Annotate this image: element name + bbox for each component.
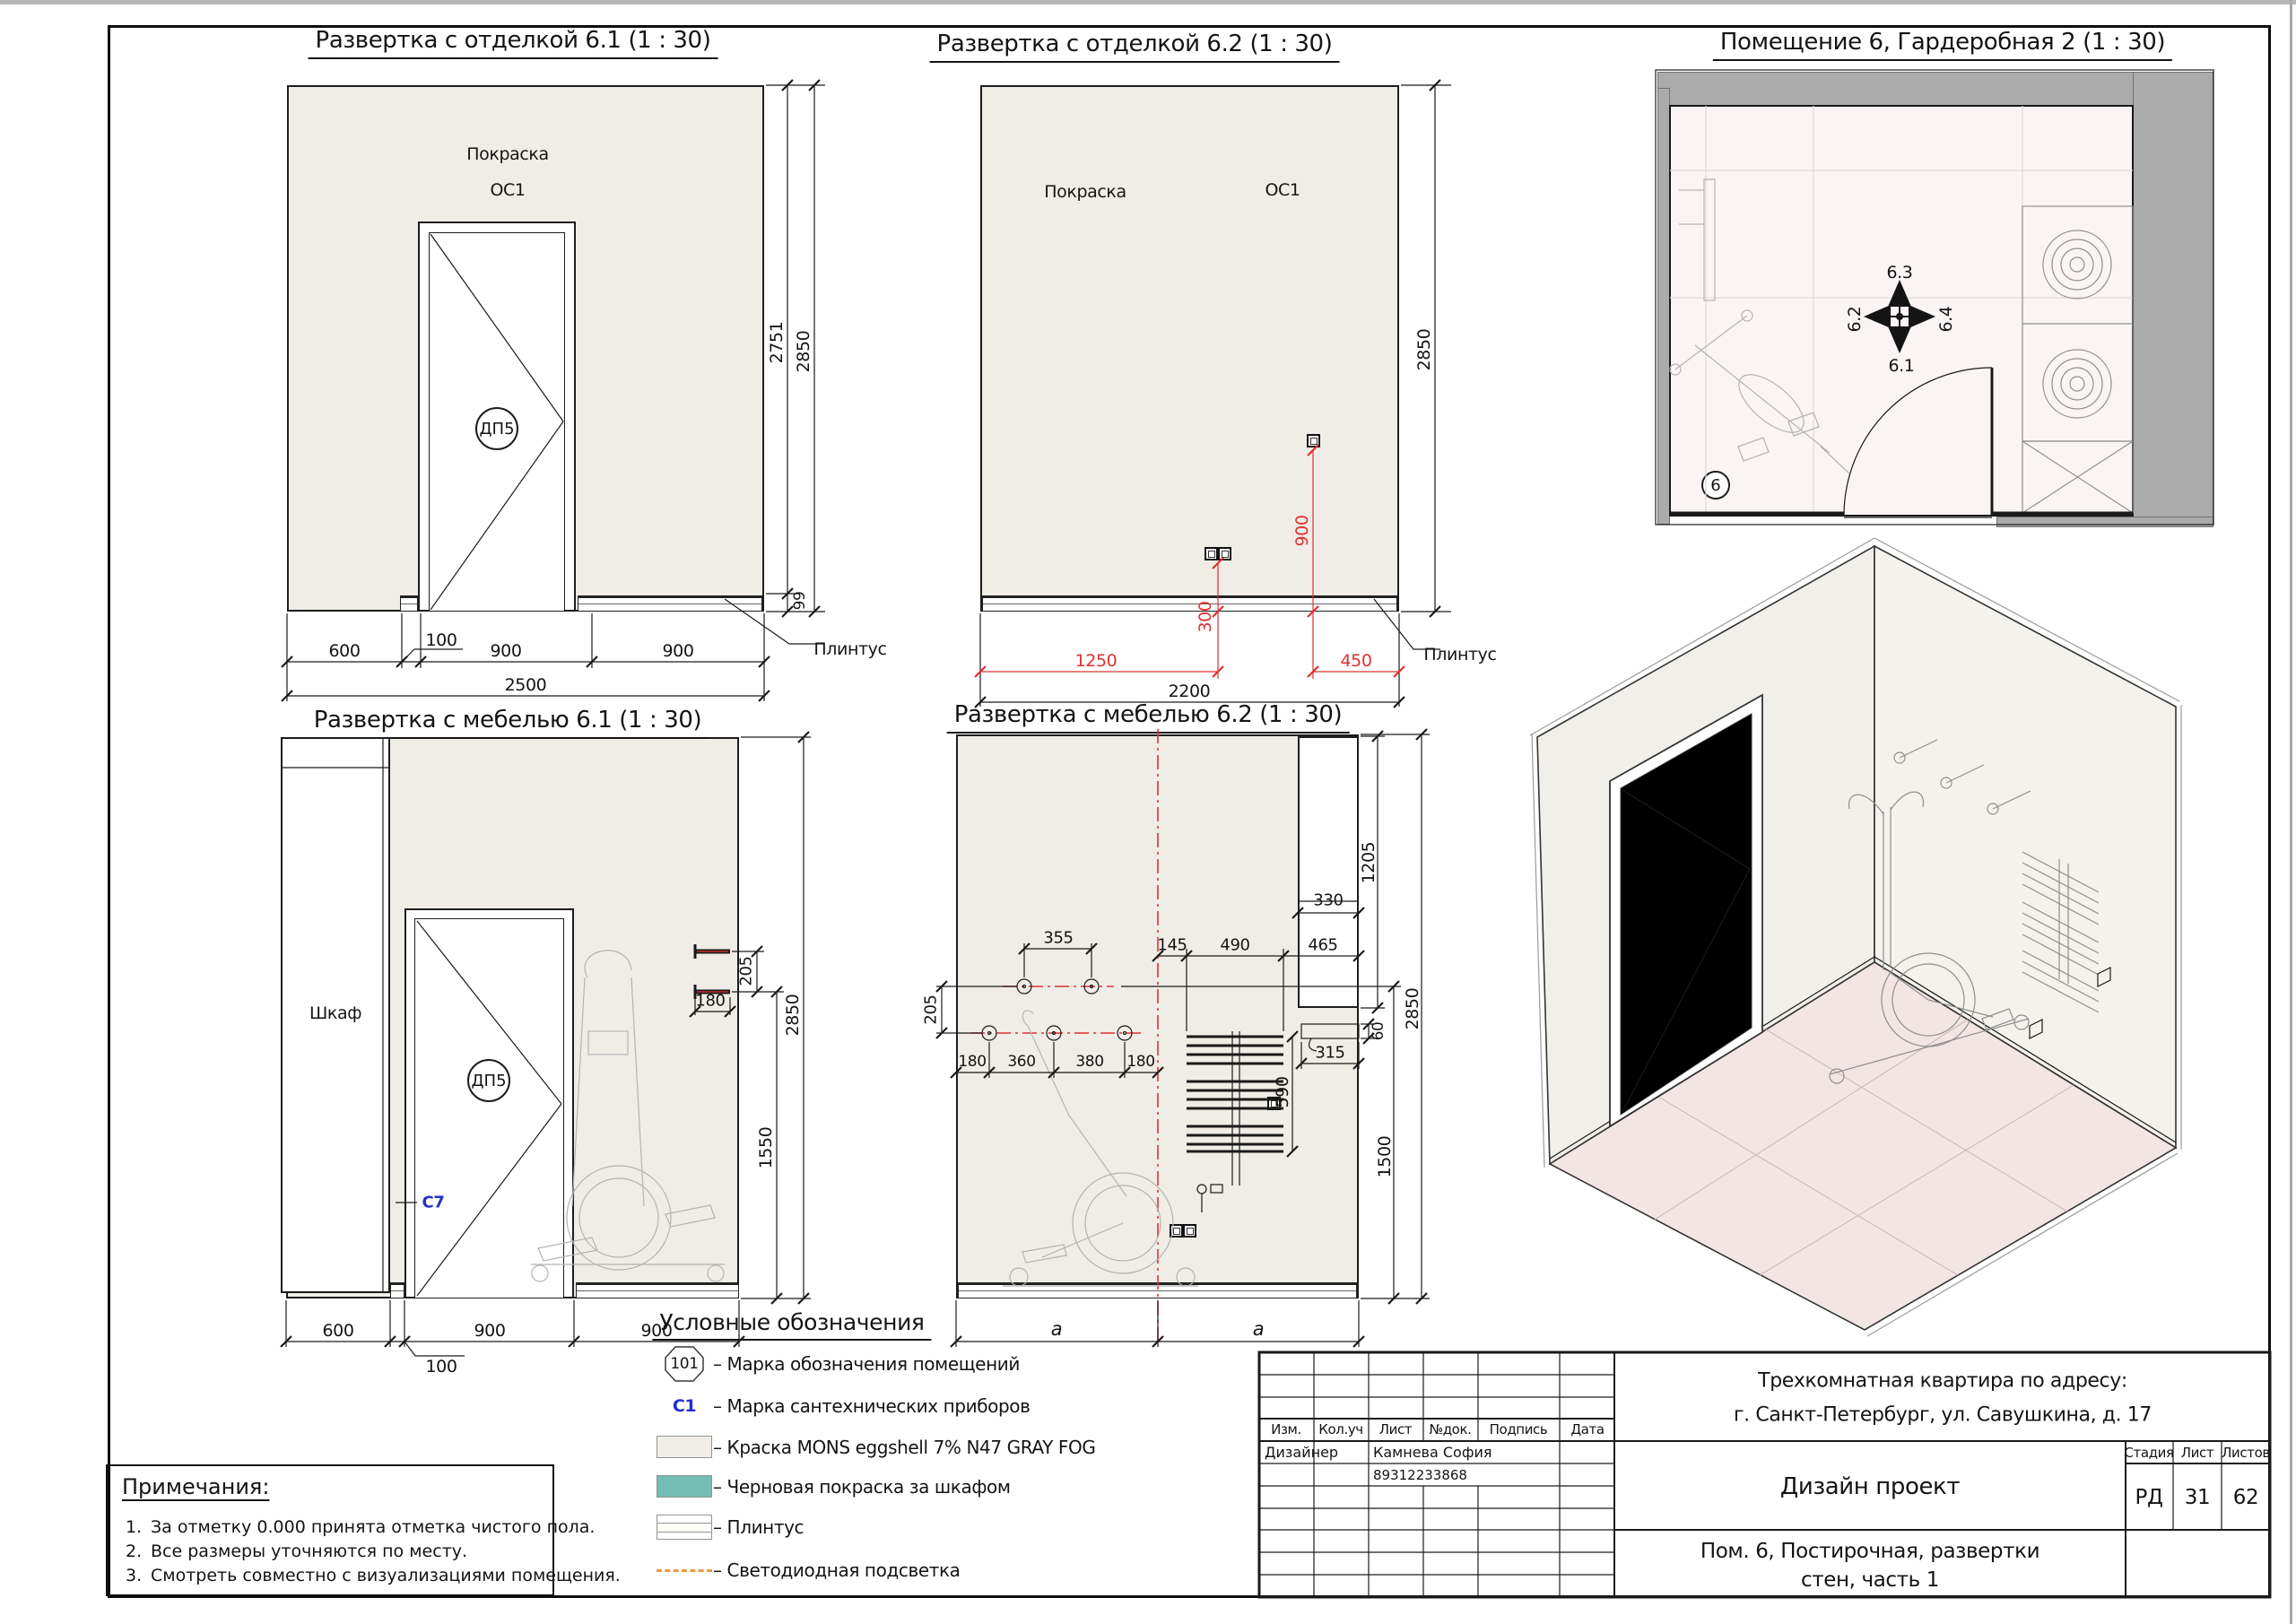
- socket-double-a-furn-6-2: [1170, 1224, 1183, 1238]
- dim-900b-furn-6-1: 900: [640, 1321, 672, 1341]
- tb-sheets-label: Листов: [2222, 1445, 2270, 1461]
- paint-code-6-2: ОС1: [1265, 180, 1300, 200]
- legend-san-mark: С1: [673, 1396, 696, 1416]
- plinth-label-6-1: Плинтус: [813, 639, 886, 659]
- tb-col-izm: Изм.: [1271, 1421, 1301, 1437]
- note-1-text: За отметку 0.000 принята отметка чистого…: [151, 1517, 595, 1537]
- dim-465-furn-6-2: 465: [1308, 936, 1337, 955]
- legend-swatch-plinth: [657, 1515, 712, 1540]
- legend-led-dash: [657, 1569, 712, 1572]
- plan-wall-left: [1657, 88, 1670, 525]
- tb-sheet-label: Лист: [2181, 1445, 2213, 1461]
- dim-100-furn-6-1: 100: [425, 1357, 457, 1376]
- tb-subject-1: Пом. 6, Постирочная, развертки: [1700, 1540, 2039, 1563]
- tb-col-dok: №док.: [1430, 1421, 1472, 1437]
- tb-col-data: Дата: [1570, 1421, 1604, 1437]
- notes-heading: Примечания:: [122, 1474, 269, 1499]
- view-title-finish-6-2: Развертка с отделкой 6.2 (1 : 30): [930, 30, 1340, 63]
- note-3-num: 3.: [126, 1566, 142, 1585]
- tb-sheets-value: 62: [2233, 1486, 2258, 1509]
- view-title-finish-6-1: Развертка с отделкой 6.1 (1 : 30): [309, 27, 718, 59]
- door-mark-tag-furn-6-1: ДП5: [467, 1059, 510, 1102]
- tb-address-2: г. Санкт-Петербург, ул. Савушкина, д. 17: [1734, 1404, 2152, 1427]
- legend-item-led: – Светодиодная подсветка: [713, 1559, 961, 1581]
- legend-heading: Условные обозначения: [652, 1309, 931, 1341]
- dim-1550-furn-6-1: 1550: [756, 1127, 776, 1169]
- marker-c7: С7: [422, 1194, 445, 1212]
- legend-item-san: – Марка сантехнических приборов: [713, 1395, 1031, 1417]
- socket-double-a-6-2: [1205, 547, 1218, 560]
- legend-swatch-rough-paint: [657, 1475, 712, 1498]
- page-right-edge: [2290, 0, 2292, 1624]
- door-mark-label: ДП5: [471, 1072, 506, 1090]
- plan-wall-bottom-right: [1996, 517, 2213, 527]
- plinth-left-furn-6-1: [390, 1282, 404, 1298]
- door-mark-label: ДП5: [479, 420, 514, 439]
- dim-380-furn-6-2: 380: [1075, 1053, 1103, 1071]
- dim-600-furn-6-1: 600: [322, 1321, 353, 1341]
- cabinet-furn-6-2: [1298, 736, 1359, 1008]
- dim-2850-furn-6-1: 2850: [783, 994, 803, 1037]
- legend-item-room: – Марка обозначения помещений: [713, 1353, 1020, 1375]
- dim-60-furn-6-2: 60: [1370, 1022, 1387, 1041]
- dim-2500-6-1: 2500: [505, 675, 547, 695]
- dim-1500-furn-6-2: 1500: [1375, 1136, 1395, 1178]
- paint-label-6-2: Покраска: [1044, 182, 1126, 202]
- tb-sheet-value: 31: [2185, 1486, 2210, 1509]
- view-title-furn-6-2: Развертка с мебелью 6.2 (1 : 30): [947, 701, 1350, 734]
- dim-330-furn-6-2: 330: [1313, 891, 1343, 910]
- dim-490-furn-6-2: 490: [1220, 936, 1249, 955]
- dim-2850-6-2: 2850: [1414, 329, 1434, 371]
- dim-2850-6-1: 2850: [794, 331, 813, 373]
- note-3-text: Смотреть совместно с визуализациями поме…: [151, 1566, 621, 1585]
- paint-label-6-1: Покраска: [466, 144, 548, 164]
- tb-address-1: Трехкомнатная квартира по адресу:: [1758, 1370, 2127, 1393]
- dim-180a-furn-6-2: 180: [958, 1053, 986, 1071]
- legend-swatch-paint: [657, 1436, 712, 1458]
- tb-designer-role: Дизайнер: [1265, 1444, 1338, 1461]
- plan-wall-right: [2133, 72, 2213, 525]
- plan-wall-top: [1657, 72, 2213, 106]
- tb-col-podpis: Подпись: [1490, 1421, 1548, 1437]
- wardrobe-label: Шкаф: [309, 1003, 361, 1023]
- dim-355-furn-6-2: 355: [1043, 929, 1073, 948]
- plinth-left-6-1: [400, 595, 418, 612]
- dim-590-furn-6-2: 590: [1273, 1076, 1292, 1107]
- dim-1205-furn-6-2: 1205: [1359, 842, 1378, 884]
- dim-900a-furn-6-1: 900: [474, 1321, 505, 1341]
- plinth-right-6-1: [578, 595, 762, 612]
- note-1-num: 1.: [126, 1517, 142, 1537]
- tb-project: Дизайн проект: [1780, 1473, 1960, 1500]
- plinth-furn-6-2: [958, 1282, 1357, 1298]
- plan-dir-left: 6.2: [1845, 306, 1865, 332]
- legend-item-plinth: – Плинтус: [713, 1516, 804, 1538]
- dim-2751-6-1: 2751: [767, 322, 787, 364]
- page-top-edge: [0, 0, 2296, 4]
- view-title-plan-6: Помещение 6, Гардеробная 2 (1 : 30): [1713, 29, 2172, 61]
- legend-room-mark: 101: [670, 1355, 698, 1373]
- dim-900a-6-1: 900: [490, 641, 521, 661]
- paint-code-6-1: ОС1: [490, 180, 525, 200]
- dim-1250-6-2: 1250: [1075, 651, 1118, 671]
- dim-900b-6-1: 900: [662, 641, 693, 661]
- dim-450-6-2: 450: [1340, 651, 1371, 671]
- dim-180-furn-6-1: 180: [695, 992, 725, 1011]
- dim-315-furn-6-2: 315: [1315, 1044, 1344, 1063]
- dim-600-6-1: 600: [328, 641, 360, 661]
- wall-finish-6-2: [980, 85, 1399, 612]
- plinth-label-6-2: Плинтус: [1423, 645, 1496, 664]
- socket-single-6-2: [1307, 434, 1320, 447]
- door-leaf-furn-6-1: [414, 918, 564, 1298]
- plan-room-tag: 6: [1701, 471, 1730, 499]
- dim-360-furn-6-2: 360: [1007, 1053, 1035, 1071]
- drawing-sheet: Развертка с отделкой 6.1 (1 : 30) ДП5 По…: [0, 0, 2296, 1624]
- dim-205-furn-6-1: 205: [737, 956, 756, 986]
- legend-item-paint: – Краска MONS eggshell 7% N47 GRAY FOG: [713, 1437, 1095, 1458]
- tb-designer-name: Камнева София: [1373, 1444, 1492, 1461]
- view-title-furn-6-1: Развертка с мебелью 6.1 (1 : 30): [307, 707, 709, 739]
- plan-dir-right: 6.4: [1936, 306, 1956, 332]
- plinth-6-2: [982, 595, 1397, 612]
- dim-a-right-furn-6-2: a: [1253, 1318, 1264, 1340]
- dim-a-left-furn-6-2: a: [1051, 1318, 1062, 1340]
- plan-room-number: 6: [1710, 476, 1720, 495]
- dim-900-6-2: 900: [1292, 515, 1312, 546]
- plan-dir-up: 6.3: [1886, 263, 1912, 282]
- dim-2850-furn-6-2: 2850: [1403, 988, 1422, 1030]
- dim-300-6-2: 300: [1196, 601, 1215, 632]
- legend-item-rough-paint: – Черновая покраска за шкафом: [713, 1476, 1011, 1498]
- door-mark-tag-6-1: ДП5: [475, 407, 518, 450]
- plan-dir-down: 6.1: [1888, 356, 1914, 376]
- dim-99-6-1: 99: [791, 592, 809, 611]
- socket-double-b-6-2: [1218, 547, 1231, 560]
- dim-100-6-1: 100: [425, 630, 457, 650]
- tb-stage-label: Стадия: [2124, 1445, 2173, 1461]
- plinth-right-furn-6-1: [576, 1282, 739, 1298]
- dim-145-furn-6-2: 145: [1157, 936, 1187, 955]
- note-2-text: Все размеры уточняются по месту.: [151, 1541, 467, 1561]
- tb-designer-phone: 89312233868: [1373, 1467, 1467, 1483]
- socket-double-b-furn-6-2: [1183, 1224, 1196, 1238]
- tb-col-list: Лист: [1379, 1421, 1412, 1437]
- plan-room-floor: [1670, 106, 2133, 516]
- note-2-num: 2.: [126, 1541, 142, 1561]
- tb-subject-2: стен, часть 1: [1801, 1568, 1939, 1592]
- dim-2200-6-2: 2200: [1169, 682, 1211, 701]
- tb-col-koluch: Кол.уч: [1318, 1421, 1363, 1437]
- dim-205-furn-6-2: 205: [922, 994, 941, 1024]
- tb-stage-value: РД: [2135, 1486, 2162, 1509]
- dim-180b-furn-6-2: 180: [1126, 1053, 1154, 1071]
